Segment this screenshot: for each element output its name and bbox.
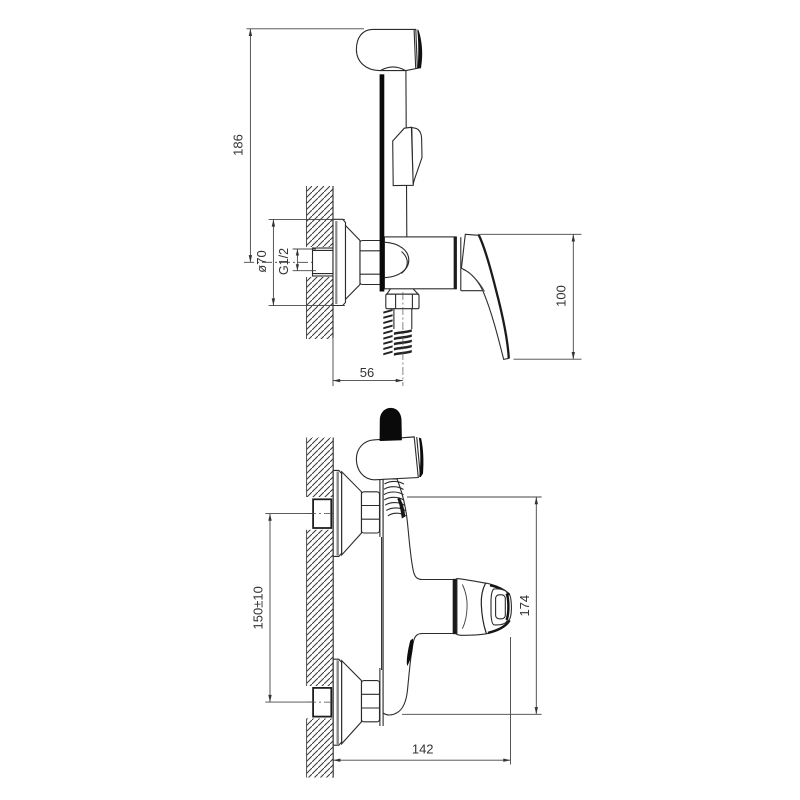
svg-text:142: 142	[412, 742, 434, 757]
svg-text:100: 100	[554, 285, 569, 307]
svg-text:ø70: ø70	[254, 250, 269, 272]
svg-text:150±10: 150±10	[251, 586, 266, 629]
svg-text:56: 56	[360, 365, 374, 380]
svg-text:G1/2: G1/2	[277, 248, 291, 275]
svg-text:174: 174	[517, 595, 532, 617]
svg-text:186: 186	[231, 134, 246, 156]
